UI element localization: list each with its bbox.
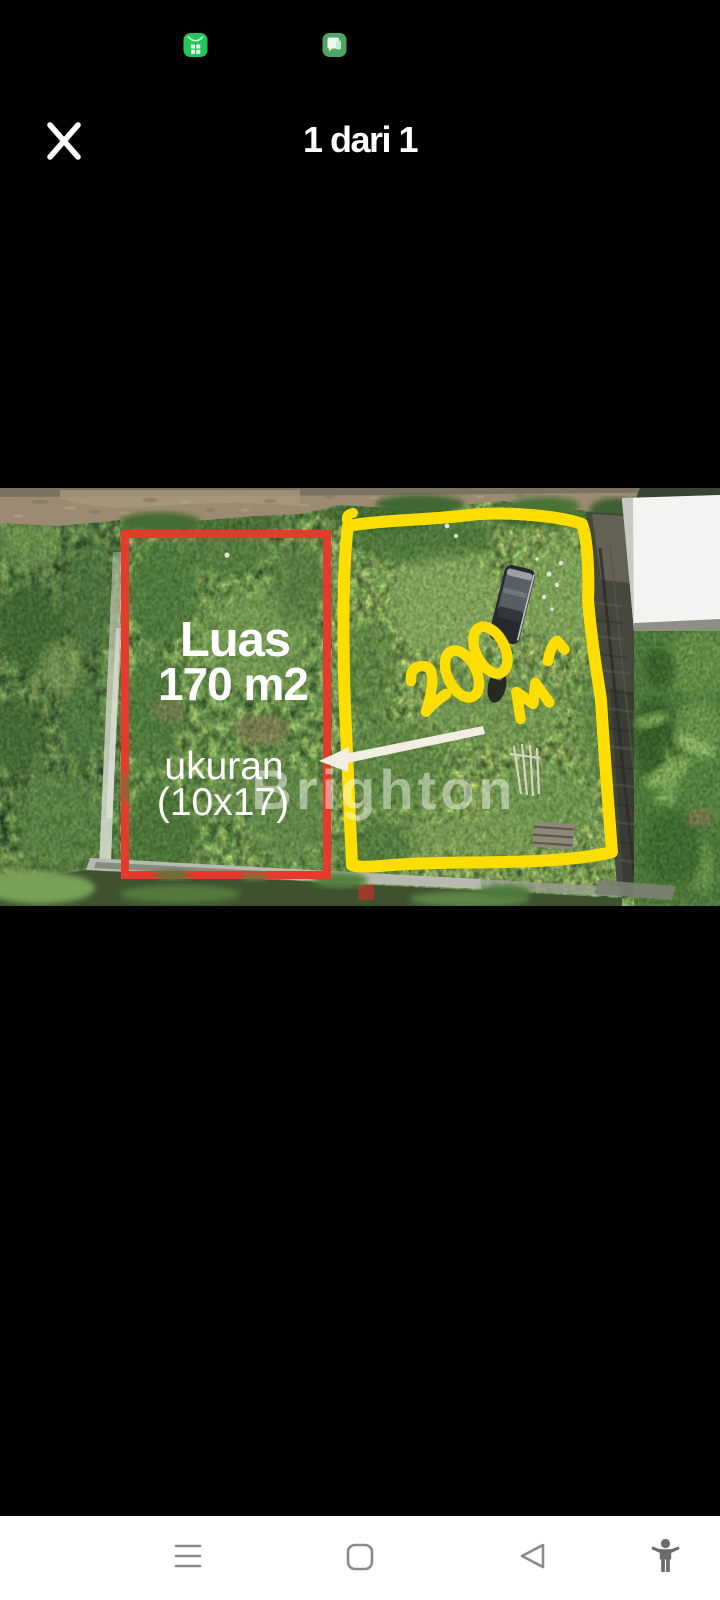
- svg-text:170 m2: 170 m2: [158, 658, 308, 710]
- svg-text:Brighton: Brighton: [251, 758, 516, 821]
